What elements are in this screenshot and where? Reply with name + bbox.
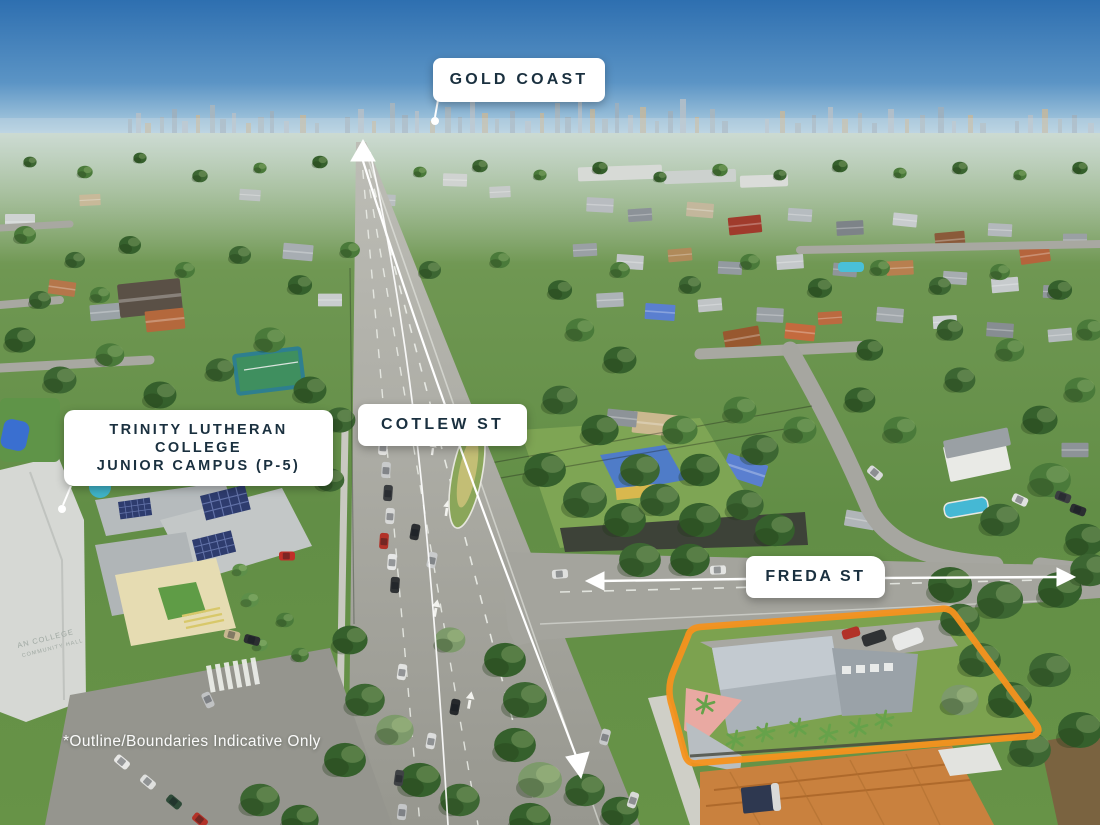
boundaries-disclaimer: *Outline/Boundaries Indicative Only — [63, 733, 321, 751]
freda-st-label: FREDA ST — [746, 556, 885, 598]
cotlew-st-label: COTLEW ST — [358, 404, 527, 446]
trinity-label-line1: TRINITY LUTHERAN — [109, 421, 287, 439]
cotlew-st-label-text: COTLEW ST — [381, 415, 504, 435]
gold-coast-label: GOLD COAST — [433, 58, 605, 102]
trinity-label-line3: JUNIOR CAMPUS (P-5) — [97, 457, 301, 475]
trinity-pointer-dot — [58, 505, 66, 513]
freda-st-label-text: FREDA ST — [765, 567, 865, 587]
goldcoast-pointer-dot — [431, 117, 439, 125]
trinity-label-line2: COLLEGE — [155, 439, 242, 457]
gold-coast-label-text: GOLD COAST — [450, 70, 589, 90]
trinity-college-label: TRINITY LUTHERAN COLLEGE JUNIOR CAMPUS (… — [64, 410, 333, 486]
freda-arrow-right-line — [885, 577, 1062, 578]
aerial-photo-stage: AN COLLEGE COMMUNITY HALL — [0, 0, 1100, 825]
